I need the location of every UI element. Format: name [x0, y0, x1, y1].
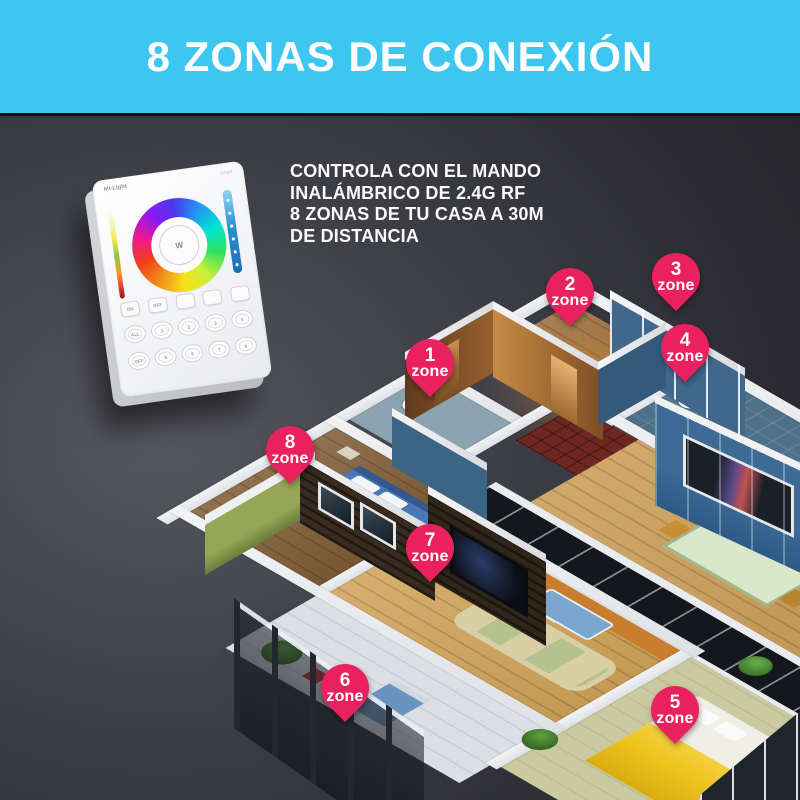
- pin-text: 7zone: [406, 524, 454, 572]
- pin-text: 1zone: [406, 339, 454, 387]
- remote-key-label: OFF: [134, 358, 144, 364]
- remote-key-label: 8: [244, 343, 247, 348]
- zone-label: zone: [271, 451, 308, 466]
- description-line: INALÁMBRICO DE 2.4G RF: [290, 183, 544, 205]
- map-pin-icon: 5zone: [641, 676, 709, 744]
- remote-key-4: 4: [230, 309, 254, 330]
- map-pin-icon: 1zone: [396, 329, 464, 397]
- description-line: 8 ZONAS DE TU CASA A 30M: [290, 204, 544, 226]
- page: 8 ZONAS DE CONEXIÓN CONTROLA CON EL MAND…: [0, 0, 800, 800]
- zone-marker-5: 5zone: [651, 686, 699, 734]
- remote-key-label: ON: [126, 306, 133, 312]
- remote-key-label: 3: [214, 320, 217, 325]
- remote-brand-right: smart: [220, 169, 233, 177]
- zone-label: zone: [411, 364, 448, 379]
- remote-front-panel: Mi-Light smart W ONOFFALL1234OFF5678: [92, 160, 273, 397]
- remote-key-5: 5: [154, 347, 178, 368]
- description-line: CONTROLA CON EL MANDO: [290, 161, 544, 183]
- zone-number: 6: [340, 673, 351, 689]
- remote-key-ON: ON: [120, 300, 141, 317]
- pin-text: 4zone: [661, 324, 709, 372]
- zone-number: 5: [670, 695, 681, 711]
- zone-marker-3: 3zone: [652, 253, 700, 301]
- remote-key-OFF: OFF: [127, 350, 151, 371]
- zone-label: zone: [551, 293, 588, 308]
- zone-label: zone: [666, 349, 703, 364]
- pin-text: 8zone: [266, 426, 314, 474]
- remote-key-label: 4: [241, 316, 244, 321]
- brightness-slider: [222, 189, 243, 273]
- zone-marker-7: 7zone: [406, 524, 454, 572]
- remote-key-8: 8: [234, 335, 258, 356]
- description-text: CONTROLA CON EL MANDO INALÁMBRICO DE 2.4…: [290, 161, 544, 247]
- zone-label: zone: [411, 549, 448, 564]
- description-line: DE DISTANCIA: [290, 226, 544, 248]
- map-pin-icon: 8zone: [256, 416, 324, 484]
- zone-number: 3: [671, 262, 682, 278]
- map-pin-icon: 2zone: [536, 258, 604, 326]
- remote-control: Mi-Light smart W ONOFFALL1234OFF5678: [92, 160, 312, 420]
- remote-key-label: 7: [218, 347, 221, 352]
- zone-number: 8: [285, 435, 296, 451]
- zone-marker-4: 4zone: [661, 324, 709, 372]
- remote-key-blank: [175, 293, 196, 310]
- remote-key-blank: [202, 289, 223, 306]
- zone-label: zone: [326, 689, 363, 704]
- map-pin-icon: 6zone: [311, 654, 379, 722]
- zone-marker-1: 1zone: [406, 339, 454, 387]
- remote-key-blank: [230, 285, 251, 302]
- remote-key-label: 6: [191, 351, 194, 356]
- remote-key-1: 1: [150, 320, 174, 341]
- remote-key-OFF: OFF: [147, 296, 168, 313]
- remote-body: Mi-Light smart W ONOFFALL1234OFF5678: [92, 160, 273, 397]
- color-wheel-center: W: [148, 213, 211, 276]
- remote-key-7: 7: [207, 339, 231, 360]
- map-pin-icon: 7zone: [396, 514, 464, 582]
- pin-text: 3zone: [652, 253, 700, 301]
- remote-key-ALL: ALL: [123, 324, 147, 345]
- zone-marker-2: 2zone: [546, 268, 594, 316]
- zone-marker-6: 6zone: [321, 664, 369, 712]
- remote-key-label: 2: [187, 324, 190, 329]
- remote-key-label: ALL: [131, 331, 140, 337]
- remote-key-label: 5: [164, 354, 167, 359]
- remote-key-label: OFF: [153, 302, 163, 308]
- pin-text: 2zone: [546, 268, 594, 316]
- white-button: W: [157, 222, 202, 267]
- pin-text: 5zone: [651, 686, 699, 734]
- zone-number: 4: [680, 333, 691, 349]
- framed-picture: [318, 481, 354, 530]
- saturation-slider: [108, 213, 125, 299]
- remote-key-3: 3: [203, 312, 227, 333]
- remote-brand-logo: Mi-Light: [103, 184, 127, 193]
- color-wheel: W: [126, 192, 232, 298]
- pin-text: 6zone: [321, 664, 369, 712]
- zone-number: 2: [565, 277, 576, 293]
- remote-key-label: 1: [160, 328, 163, 333]
- map-pin-icon: 3zone: [642, 243, 710, 311]
- remote-key-6: 6: [180, 343, 204, 364]
- zone-number: 7: [425, 533, 436, 549]
- map-pin-icon: 4zone: [651, 314, 719, 382]
- zone-number: 1: [425, 348, 436, 364]
- zone-label: zone: [657, 278, 694, 293]
- remote-keypad: ONOFFALL1234OFF5678: [109, 283, 270, 381]
- zone-label: zone: [656, 711, 693, 726]
- remote-key-2: 2: [177, 316, 201, 337]
- zone-marker-8: 8zone: [266, 426, 314, 474]
